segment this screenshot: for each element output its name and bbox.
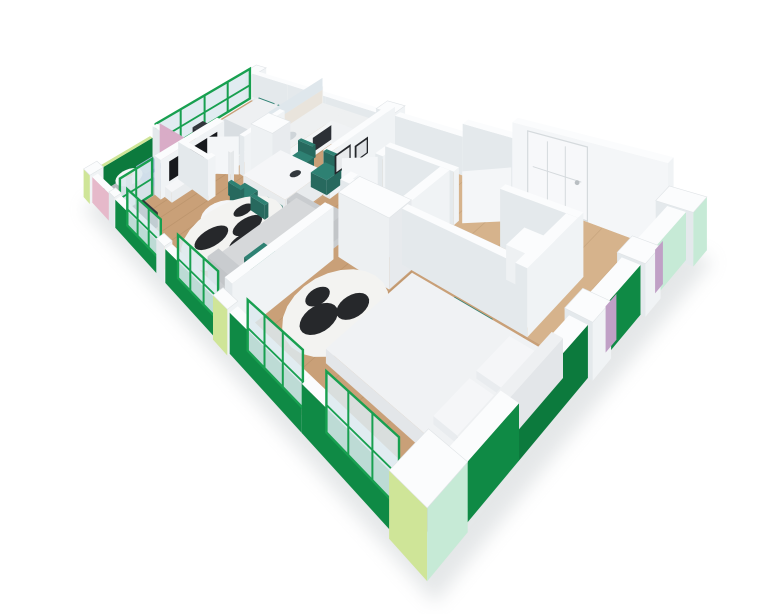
- floorplan-stage: [0, 0, 768, 614]
- corridor-wall-b-side-front: [578, 213, 583, 283]
- entry-door-handle: [575, 180, 580, 185]
- dining-chair-2-back-side-front: [265, 203, 269, 220]
- bath-bottom-wall-side-left: [515, 263, 527, 338]
- sw-pillar-a-side-left: [109, 192, 115, 228]
- tv-wall-side-left: [155, 156, 161, 200]
- bedroom1-wall-a-side-left: [204, 157, 208, 201]
- bedroom1-wall-a-side-front: [208, 155, 215, 201]
- bedroom1-wall-b-side-left: [240, 135, 245, 177]
- apartment-3d-floorplan: [0, 0, 768, 614]
- corridor-wall-a-side-front: [454, 167, 459, 225]
- bedroom1-wall-a: [204, 153, 216, 201]
